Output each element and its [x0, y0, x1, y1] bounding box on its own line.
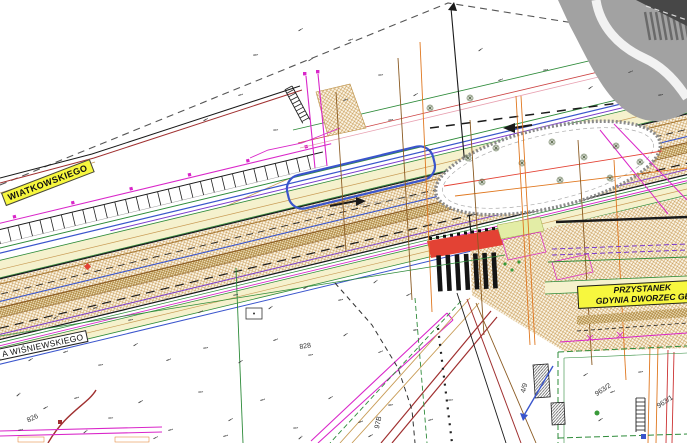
- parcel-963-2-boundary: [520, 346, 687, 443]
- building-hatched: [533, 364, 550, 398]
- station-structure-gray: [558, 0, 687, 121]
- cross-street-bundle-sw: [311, 298, 497, 443]
- building-hatched: [551, 402, 565, 425]
- stairs-and-ramp: [250, 70, 366, 168]
- site-plan-drawing: [0, 0, 687, 443]
- site-plan-canvas[interactable]: WIATKOWSKIEGO A WIŚNIEWSKIEGO PRZYSTANEK…: [0, 0, 687, 443]
